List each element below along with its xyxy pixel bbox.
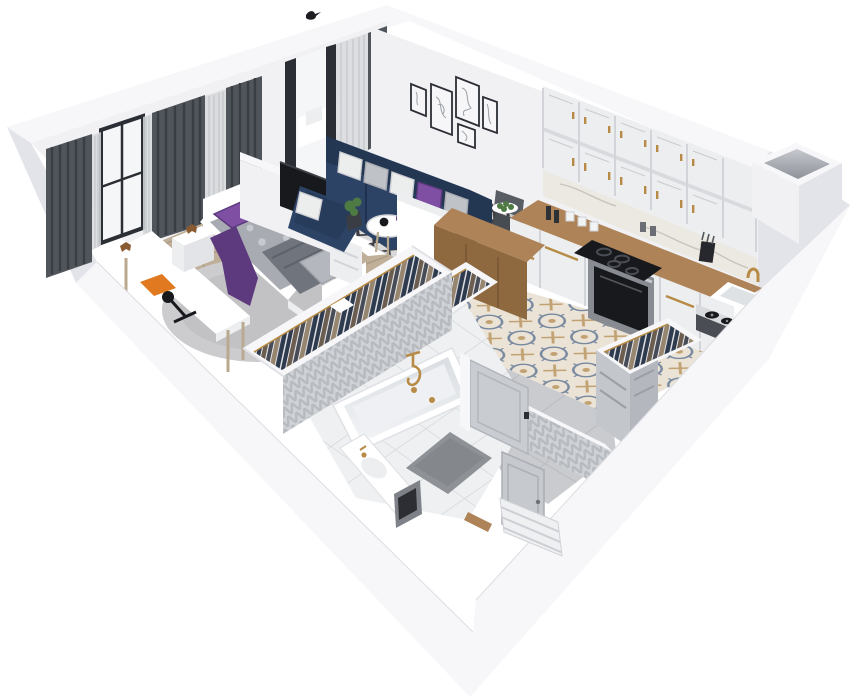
entry-threshold	[464, 512, 492, 532]
camera-on-table	[380, 218, 389, 227]
apartment-render	[0, 0, 862, 700]
art-frame-1	[411, 84, 426, 116]
knife-block	[699, 241, 716, 263]
art-frame-4	[483, 97, 497, 133]
art-frame-3	[456, 77, 479, 126]
floorplan-stage	[0, 0, 862, 700]
door-jamb	[460, 352, 470, 432]
bird-on-wall	[306, 11, 321, 20]
vanity-faucet	[361, 452, 366, 457]
tub-drain	[429, 397, 435, 403]
sheer-curtain	[143, 114, 152, 235]
sheer-curtain	[92, 132, 101, 250]
door-hinge	[524, 412, 529, 419]
entry-door-handle	[536, 500, 540, 504]
